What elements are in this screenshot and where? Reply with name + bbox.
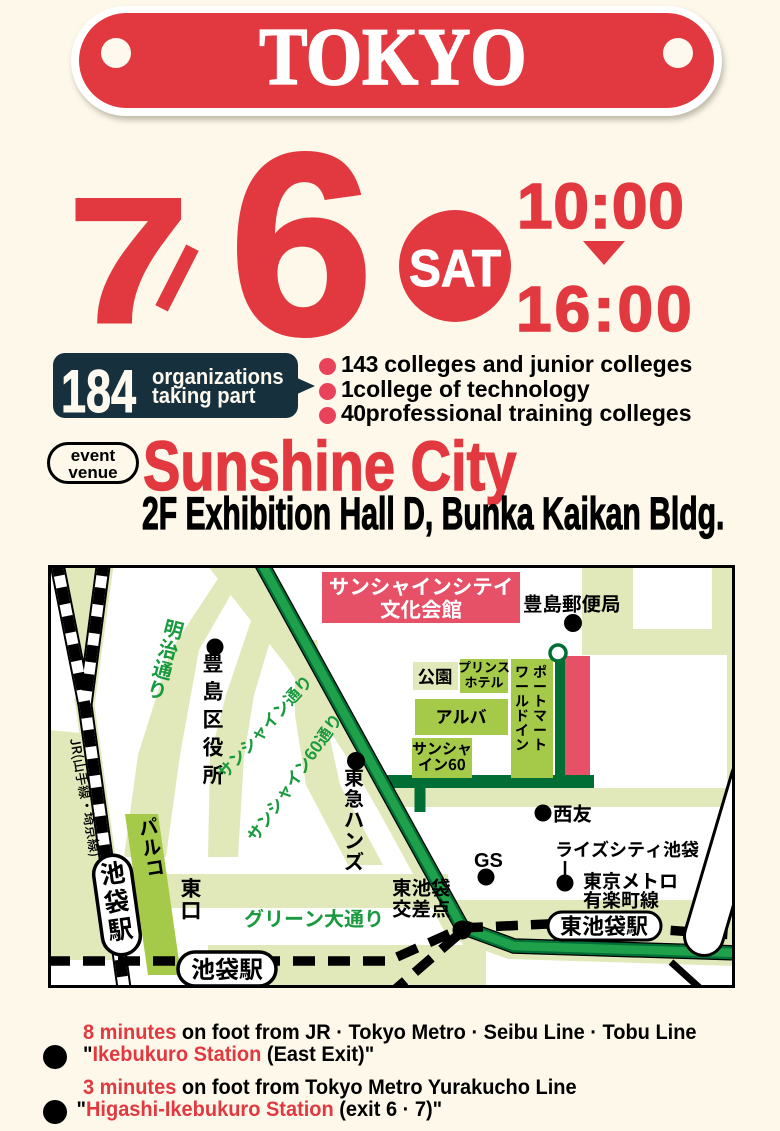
svg-text:GS: GS [474,850,503,872]
